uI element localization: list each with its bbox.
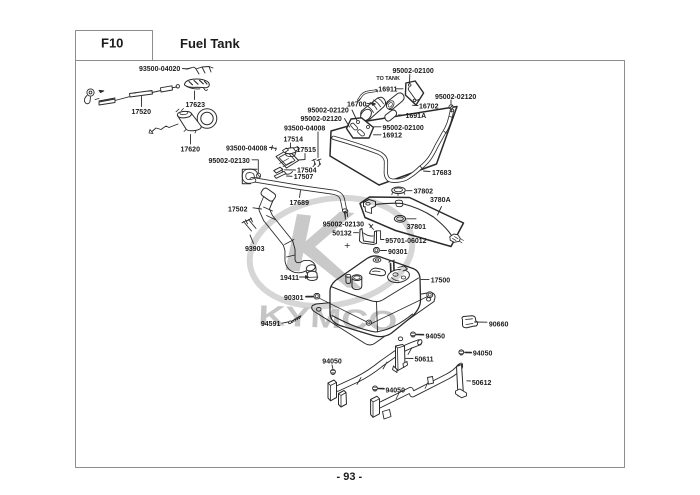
svg-text:94050: 94050 <box>322 359 342 366</box>
svg-text:93500-04008: 93500-04008 <box>226 145 267 152</box>
svg-text:17623: 17623 <box>186 102 206 109</box>
svg-text:- 93 -: - 93 - <box>337 471 363 483</box>
svg-text:94050: 94050 <box>473 351 493 358</box>
svg-text:1691A: 1691A <box>406 113 427 120</box>
svg-text:Fuel Tank: Fuel Tank <box>180 36 240 51</box>
svg-text:17683: 17683 <box>432 170 452 177</box>
svg-text:F10: F10 <box>101 36 123 51</box>
svg-text:16911: 16911 <box>378 87 397 94</box>
svg-text:17502: 17502 <box>228 206 248 213</box>
svg-text:16702: 16702 <box>419 104 439 111</box>
svg-text:17520: 17520 <box>132 109 152 116</box>
svg-text:95002-02100: 95002-02100 <box>393 68 434 75</box>
svg-text:37802: 37802 <box>414 189 434 196</box>
svg-text:17500: 17500 <box>431 278 451 285</box>
svg-text:93500-04020: 93500-04020 <box>139 66 180 73</box>
svg-text:95002-02120: 95002-02120 <box>435 94 476 101</box>
svg-text:17514: 17514 <box>284 137 304 144</box>
svg-text:19411: 19411 <box>280 275 299 282</box>
svg-text:50612: 50612 <box>472 380 492 387</box>
svg-text:17507: 17507 <box>294 174 314 181</box>
svg-text:16700: 16700 <box>347 101 367 108</box>
svg-text:90301: 90301 <box>388 249 408 256</box>
svg-text:KYMCO: KYMCO <box>258 300 398 337</box>
svg-text:95002-02130: 95002-02130 <box>209 158 250 165</box>
svg-text:3780A: 3780A <box>430 197 451 204</box>
svg-text:95002-02120: 95002-02120 <box>308 108 349 115</box>
svg-text:17620: 17620 <box>181 146 201 153</box>
svg-text:17515: 17515 <box>297 147 317 154</box>
svg-text:94050: 94050 <box>426 334 446 341</box>
svg-text:TO TANK: TO TANK <box>376 76 400 82</box>
svg-text:95002-02100: 95002-02100 <box>383 125 424 132</box>
svg-text:95701-06012: 95701-06012 <box>385 238 426 245</box>
svg-text:50611: 50611 <box>415 357 434 364</box>
svg-text:93500-04008: 93500-04008 <box>284 126 325 133</box>
svg-text:94050: 94050 <box>386 387 406 394</box>
svg-text:16912: 16912 <box>383 132 403 139</box>
svg-text:95002-02120: 95002-02120 <box>301 116 342 123</box>
svg-text:50132: 50132 <box>332 231 352 238</box>
svg-text:90660: 90660 <box>489 321 509 328</box>
